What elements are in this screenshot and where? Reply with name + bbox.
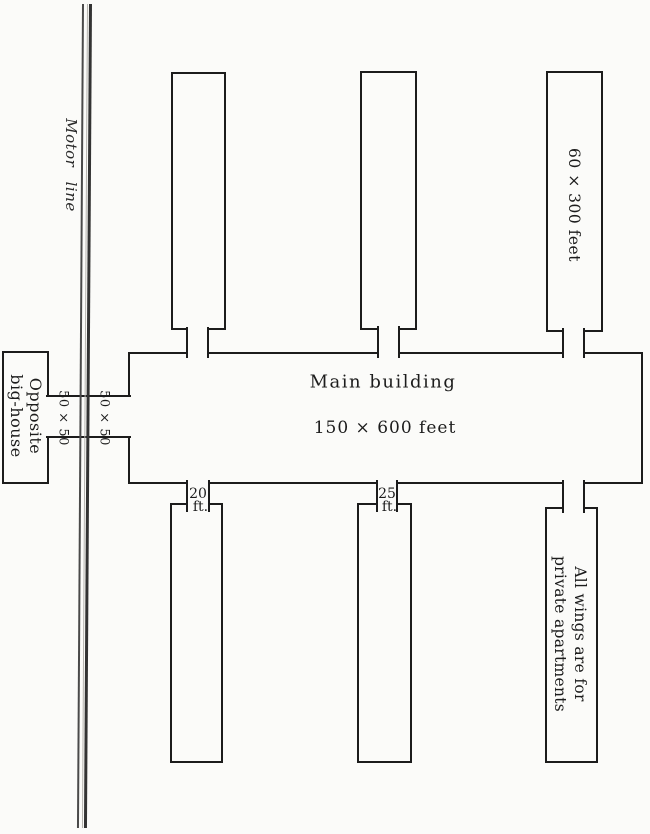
wing-note-label-line1: All wings are for bbox=[570, 556, 590, 712]
passage-size-left-label: 50 × 50 bbox=[56, 390, 71, 446]
neck-width-20-unit: ft. bbox=[193, 501, 208, 514]
top-wing-1-neck bbox=[186, 327, 209, 358]
opposite-big-house-label-line1: Opposite bbox=[26, 374, 45, 457]
plan-diagram: Motor line Opposite big-house 50 × 50 50… bbox=[0, 0, 650, 834]
wing-note-label-line2: private apartments bbox=[550, 556, 570, 712]
top-wing-1-outline bbox=[171, 72, 226, 330]
opposite-big-house-label: Opposite big-house bbox=[7, 374, 45, 457]
passage-size-right-label: 50 × 50 bbox=[97, 390, 112, 446]
neck-width-20-label: 20 ft. bbox=[188, 488, 208, 514]
opposite-big-house-label-line2: big-house bbox=[7, 374, 26, 457]
main-building-name-label: Main building bbox=[310, 372, 457, 393]
main-building-dims-label: 150 × 600 feet bbox=[314, 418, 457, 438]
bottom-wing-3-neck bbox=[562, 480, 585, 513]
neck-width-25-unit: ft. bbox=[382, 501, 397, 514]
top-wing-3-neck bbox=[562, 328, 585, 358]
top-wing-dims-label: 60 × 300 feet bbox=[565, 148, 583, 262]
bottom-wing-1-outline bbox=[170, 503, 223, 763]
top-wing-2-neck bbox=[377, 326, 400, 358]
neck-width-25-label: 25 ft. bbox=[377, 488, 397, 514]
top-wing-2-outline bbox=[360, 71, 417, 330]
motor-line-label: Motor line bbox=[62, 118, 80, 212]
bottom-wing-2-outline bbox=[357, 503, 412, 763]
wing-note-label: All wings are for private apartments bbox=[550, 556, 590, 712]
